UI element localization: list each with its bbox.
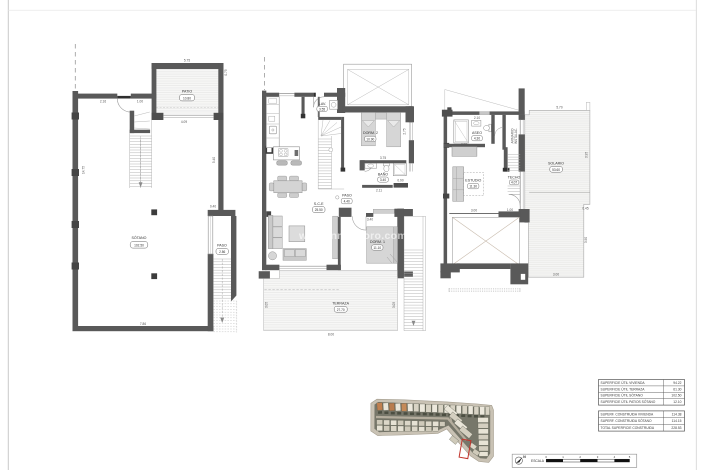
svg-text:2.75: 2.75 [402,128,406,134]
svg-text:3.00: 3.00 [471,209,477,213]
svg-text:SUPERFICIE ÚTIL TERRAZA: SUPERFICIE ÚTIL TERRAZA [601,387,646,391]
svg-text:TECHO: TECHO [508,176,521,180]
svg-text:ASEO: ASEO [472,131,482,135]
svg-text:11.30: 11.30 [469,185,477,189]
svg-text:10.80: 10.80 [183,96,191,100]
svg-text:3.40: 3.40 [367,218,373,222]
svg-text:3.55: 3.55 [319,107,325,111]
svg-text:3.75: 3.75 [380,156,386,160]
svg-text:3.40: 3.40 [380,178,386,182]
svg-text:114.15: 114.15 [672,419,682,423]
svg-text:0.75: 0.75 [224,69,228,75]
svg-text:53.60: 53.60 [552,168,560,172]
svg-text:1.00: 1.00 [137,99,143,103]
svg-text:61.30: 61.30 [673,387,681,391]
svg-text:TOTAL SUPERFICIE CONSTRUIDA: TOTAL SUPERFICIE CONSTRUIDA [601,426,655,430]
svg-text:2.10: 2.10 [474,116,480,120]
svg-text:5.75: 5.75 [184,59,190,63]
svg-text:4.07: 4.07 [511,181,517,185]
svg-text:5.40: 5.40 [212,157,216,163]
svg-text:7.86: 7.86 [140,322,146,326]
svg-text:PATIO: PATIO [182,90,192,94]
svg-text:0.45: 0.45 [582,207,588,211]
svg-text:3.05: 3.05 [264,302,268,308]
svg-text:LAV.: LAV. [319,102,326,106]
svg-text:TERRAZA: TERRAZA [332,302,349,306]
svg-text:3.90: 3.90 [584,237,588,243]
svg-text:10.90: 10.90 [366,137,374,141]
svg-text:2.86: 2.86 [219,250,225,254]
svg-text:S-C-E: S-C-E [314,202,324,206]
svg-text:PASO: PASO [342,194,352,198]
svg-text:2.16: 2.16 [100,99,106,103]
svg-text:INSTALAC.: INSTALAC. [514,128,518,144]
svg-text:3.00: 3.00 [553,272,559,276]
svg-text:2.11: 2.11 [376,188,382,192]
svg-text:SUPERFICIE ÚTIL VIVIENDA: SUPERFICIE ÚTIL VIVIENDA [601,381,646,385]
svg-text:SUPERFICIE ÚTIL SÓTANO: SUPERFICIE ÚTIL SÓTANO [601,393,644,398]
svg-text:228.53: 228.53 [671,426,681,430]
svg-text:4.30: 4.30 [474,137,480,141]
svg-text:PASO: PASO [217,244,227,248]
svg-text:8.00: 8.00 [328,332,334,336]
svg-text:25.50: 25.50 [315,208,323,212]
svg-text:4.40: 4.40 [344,200,350,204]
svg-text:ESTUDIO: ESTUDIO [465,179,481,183]
svg-text:102.50: 102.50 [134,243,144,247]
svg-text:2.00: 2.00 [461,143,467,147]
svg-text:SOLARIO: SOLARIO [548,162,564,166]
svg-text:3.05: 3.05 [392,302,396,308]
svg-text:SÓTANO: SÓTANO [132,235,147,240]
svg-text:27.70: 27.70 [337,308,345,312]
svg-text:14.75: 14.75 [82,166,86,174]
svg-text:12.10: 12.10 [673,400,681,404]
svg-text:102.50: 102.50 [671,394,681,398]
svg-text:11.10: 11.10 [373,246,381,250]
svg-text:www.inmobioro.com: www.inmobioro.com [298,230,407,242]
svg-text:4.09: 4.09 [181,120,187,124]
svg-text:SUPERF. CONSTRUIDA SÓTANO: SUPERF. CONSTRUIDA SÓTANO [601,418,652,423]
svg-text:5.70: 5.70 [556,106,562,110]
svg-text:SUPERF. CONSTRUIDA VIVIENDA: SUPERF. CONSTRUIDA VIVIENDA [601,413,655,417]
svg-text:114.38: 114.38 [672,413,682,417]
svg-text:0.40: 0.40 [210,205,216,209]
svg-text:SUPERFICIE ÚTIL PATIOS SÓTANO: SUPERFICIE ÚTIL PATIOS SÓTANO [601,399,656,404]
svg-text:0.90: 0.90 [397,179,403,183]
svg-text:BAÑO: BAÑO [378,172,388,177]
svg-text:ESCALA: ESCALA [531,459,545,463]
svg-text:94.22: 94.22 [673,381,681,385]
svg-text:DORM. 2: DORM. 2 [363,131,378,135]
svg-text:3.95: 3.95 [585,152,589,158]
